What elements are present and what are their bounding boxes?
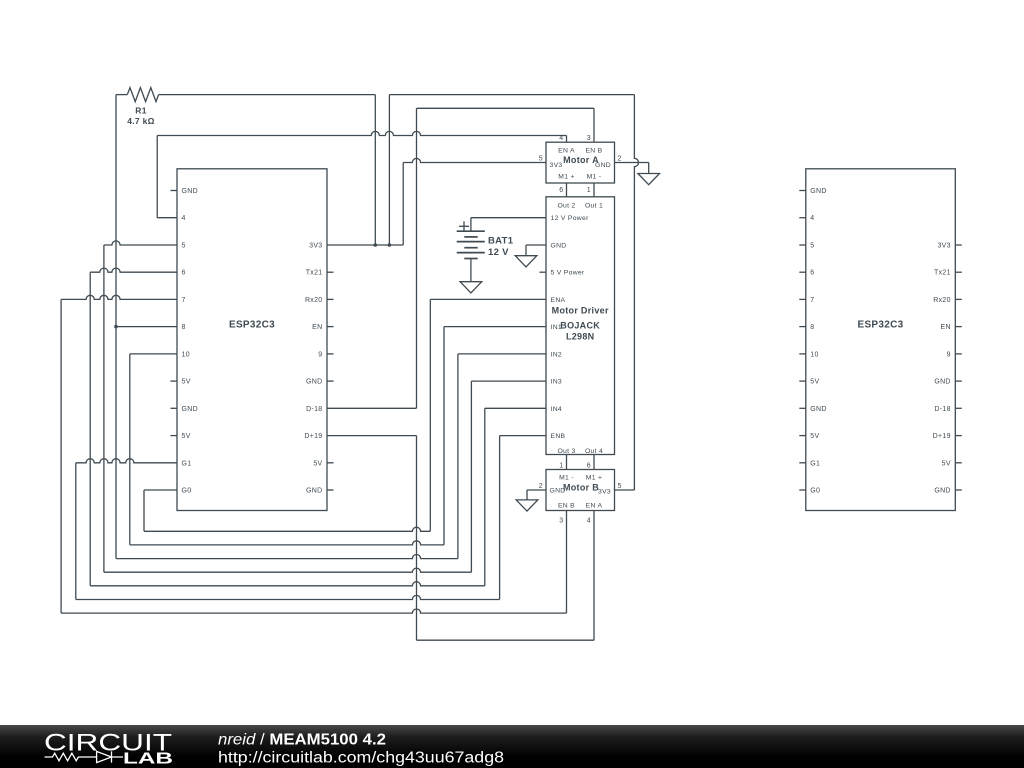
svg-text:IN4: IN4 bbox=[551, 406, 562, 413]
svg-text:3V3: 3V3 bbox=[598, 488, 611, 495]
svg-text:2: 2 bbox=[618, 155, 622, 162]
svg-text:BAT1: BAT1 bbox=[488, 235, 514, 246]
svg-text:6: 6 bbox=[810, 270, 814, 277]
svg-text:EN B: EN B bbox=[558, 502, 575, 509]
svg-text:5: 5 bbox=[618, 483, 622, 490]
svg-text:IN2: IN2 bbox=[551, 351, 562, 358]
svg-text:BOJACK: BOJACK bbox=[560, 321, 600, 331]
svg-text:6: 6 bbox=[559, 187, 563, 194]
svg-text:7: 7 bbox=[810, 297, 814, 304]
svg-text:http://circuitlab.com/chg43uu6: http://circuitlab.com/chg43uu67adg8 bbox=[218, 750, 504, 767]
svg-text:Out 3: Out 3 bbox=[557, 448, 575, 455]
svg-text:4.7 kΩ: 4.7 kΩ bbox=[127, 116, 155, 126]
svg-text:3: 3 bbox=[559, 517, 563, 524]
svg-text:1: 1 bbox=[587, 187, 591, 194]
svg-text:EN: EN bbox=[312, 324, 322, 331]
svg-text:9: 9 bbox=[947, 351, 951, 358]
svg-text:4: 4 bbox=[810, 215, 814, 222]
svg-text:GND: GND bbox=[595, 162, 611, 169]
svg-text:G1: G1 bbox=[810, 460, 820, 467]
svg-text:Motor A: Motor A bbox=[563, 155, 599, 165]
svg-text:5V: 5V bbox=[182, 379, 191, 386]
svg-text:9: 9 bbox=[318, 351, 322, 358]
svg-text:M1 -: M1 - bbox=[587, 173, 602, 180]
svg-text:GND: GND bbox=[550, 488, 566, 495]
svg-text:GND: GND bbox=[306, 488, 322, 495]
svg-text:ENB: ENB bbox=[551, 433, 566, 440]
svg-text:5: 5 bbox=[539, 155, 543, 162]
svg-text:1: 1 bbox=[559, 462, 563, 469]
svg-text:R1: R1 bbox=[135, 106, 146, 116]
svg-text:GND: GND bbox=[182, 188, 198, 195]
svg-text:LAB: LAB bbox=[123, 751, 173, 768]
svg-text:G0: G0 bbox=[182, 488, 192, 495]
svg-text:D-18: D-18 bbox=[934, 406, 950, 413]
svg-text:ESP32C3: ESP32C3 bbox=[857, 319, 903, 330]
svg-text:EN: EN bbox=[940, 324, 950, 331]
svg-text:EN A: EN A bbox=[586, 502, 603, 509]
svg-text:10: 10 bbox=[182, 351, 190, 358]
svg-text:D+19: D+19 bbox=[933, 433, 951, 440]
svg-text:Motor B: Motor B bbox=[563, 482, 599, 492]
svg-text:12 V: 12 V bbox=[488, 247, 509, 258]
svg-text:D+19: D+19 bbox=[304, 433, 322, 440]
svg-text:Out 2: Out 2 bbox=[557, 202, 575, 209]
svg-text:5V: 5V bbox=[182, 433, 191, 440]
svg-text:5V: 5V bbox=[942, 460, 951, 467]
svg-text:5V: 5V bbox=[810, 433, 819, 440]
svg-text:Tx21: Tx21 bbox=[934, 270, 951, 277]
svg-text:L298N: L298N bbox=[566, 332, 595, 342]
svg-text:G0: G0 bbox=[810, 488, 820, 495]
svg-text:EN B: EN B bbox=[585, 148, 602, 155]
svg-text:ESP32C3: ESP32C3 bbox=[229, 319, 275, 330]
svg-text:5V: 5V bbox=[313, 460, 322, 467]
svg-text:Tx21: Tx21 bbox=[306, 270, 323, 277]
svg-text:GND: GND bbox=[810, 406, 826, 413]
svg-text:5: 5 bbox=[810, 243, 814, 250]
svg-text:G1: G1 bbox=[182, 460, 192, 467]
svg-text:7: 7 bbox=[182, 297, 186, 304]
svg-text:4: 4 bbox=[587, 517, 591, 524]
svg-text:Out 4: Out 4 bbox=[585, 448, 603, 455]
svg-text:6: 6 bbox=[587, 462, 591, 469]
svg-text:12 V Power: 12 V Power bbox=[551, 215, 590, 222]
svg-text:M1 -: M1 - bbox=[559, 474, 574, 481]
svg-text:Rx20: Rx20 bbox=[933, 297, 951, 304]
svg-text:Rx20: Rx20 bbox=[305, 297, 323, 304]
svg-text:3V3: 3V3 bbox=[309, 243, 322, 250]
svg-text:D-18: D-18 bbox=[306, 406, 322, 413]
svg-text:M1 +: M1 + bbox=[586, 474, 603, 481]
svg-text:Out 1: Out 1 bbox=[585, 202, 603, 209]
svg-text:nreid / MEAM5100 4.2: nreid / MEAM5100 4.2 bbox=[218, 732, 386, 749]
svg-text:3V3: 3V3 bbox=[937, 243, 950, 250]
svg-text:GND: GND bbox=[810, 188, 826, 195]
svg-text:5V: 5V bbox=[810, 379, 819, 386]
svg-text:GND: GND bbox=[551, 243, 567, 250]
svg-text:IN3: IN3 bbox=[551, 379, 562, 386]
svg-text:GND: GND bbox=[306, 379, 322, 386]
svg-text:M1 +: M1 + bbox=[558, 173, 575, 180]
svg-text:3: 3 bbox=[587, 135, 591, 142]
svg-text:4: 4 bbox=[182, 215, 186, 222]
svg-text:2: 2 bbox=[539, 483, 543, 490]
svg-text:GND: GND bbox=[934, 379, 950, 386]
svg-text:GND: GND bbox=[934, 488, 950, 495]
svg-text:8: 8 bbox=[810, 324, 814, 331]
svg-text:8: 8 bbox=[182, 324, 186, 331]
svg-text:10: 10 bbox=[810, 351, 818, 358]
svg-text:ENA: ENA bbox=[551, 297, 566, 304]
svg-text:Motor Driver: Motor Driver bbox=[552, 305, 609, 315]
svg-text:5 V Power: 5 V Power bbox=[551, 270, 585, 277]
svg-text:GND: GND bbox=[182, 406, 198, 413]
svg-text:EN A: EN A bbox=[558, 148, 575, 155]
svg-text:4: 4 bbox=[559, 135, 563, 142]
svg-text:5: 5 bbox=[182, 243, 186, 250]
svg-text:3V3: 3V3 bbox=[550, 162, 563, 169]
svg-text:6: 6 bbox=[182, 270, 186, 277]
